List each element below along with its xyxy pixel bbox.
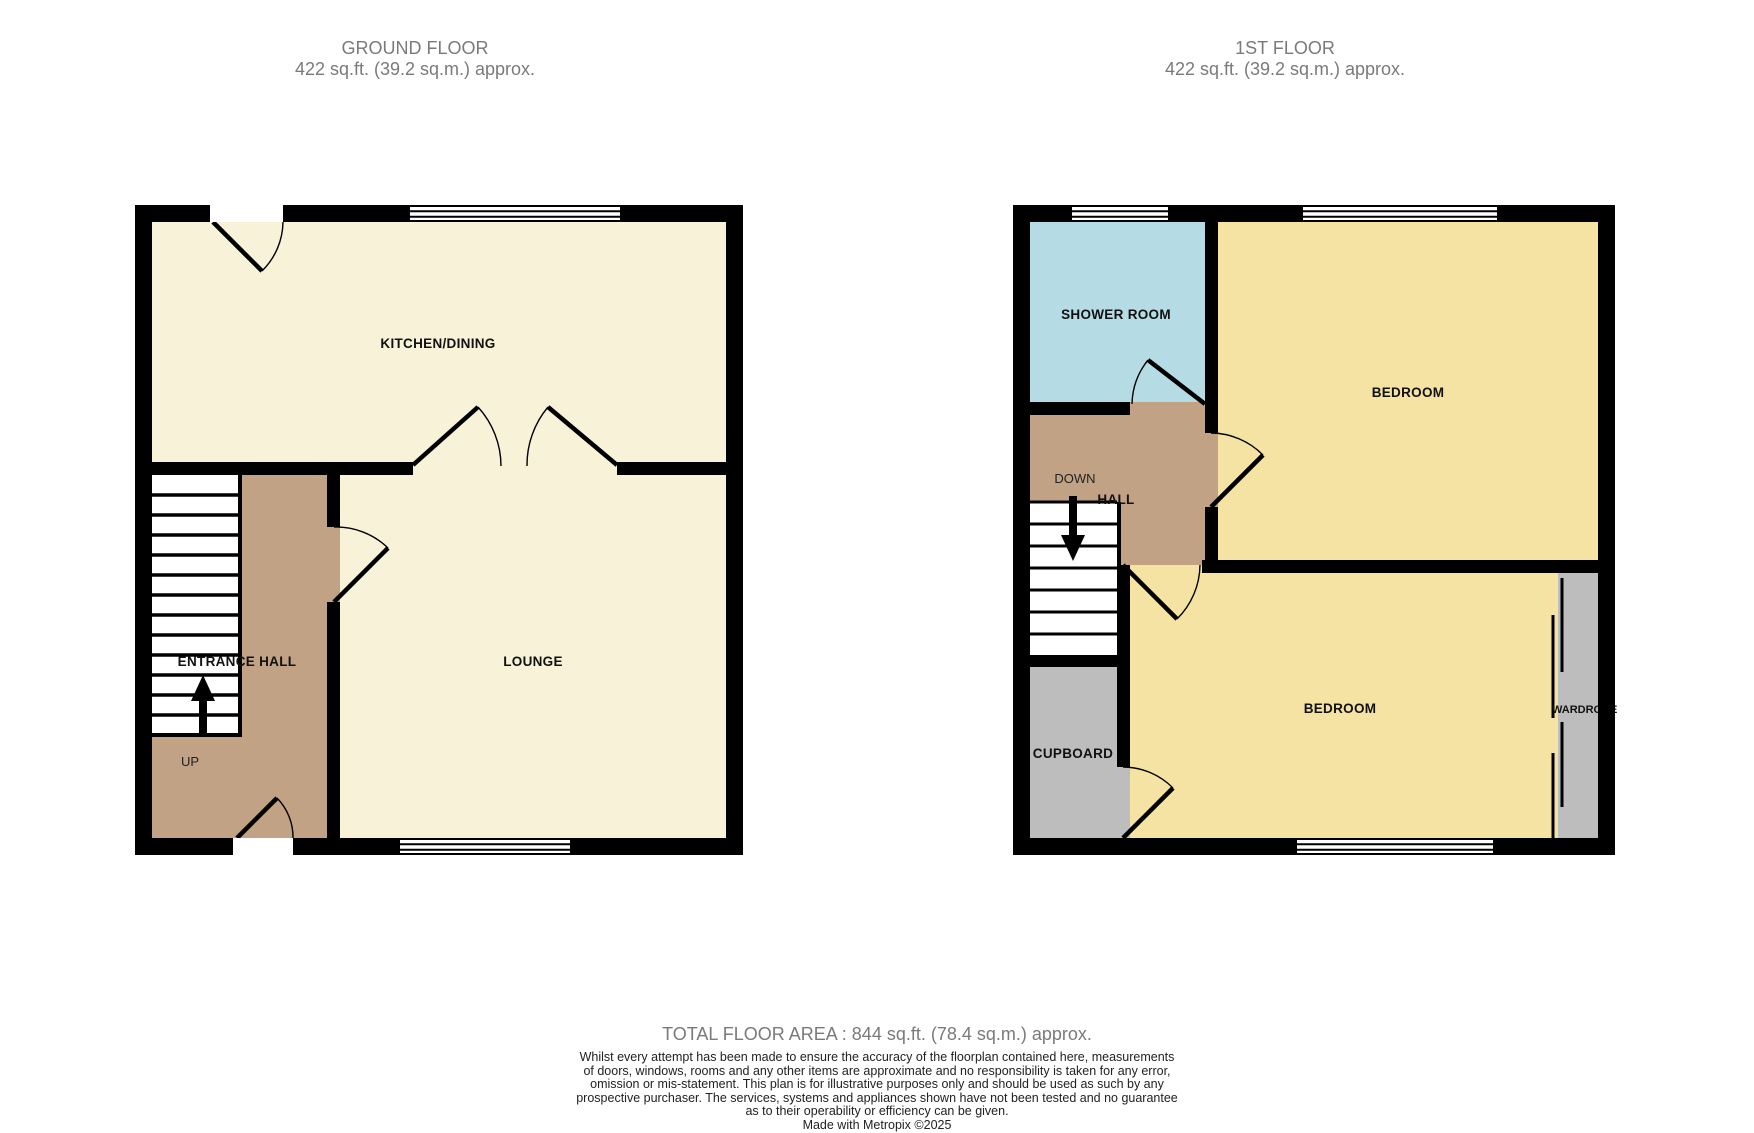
floorplan-canvas: KITCHEN/DINING ENTRANCE HALL LOUNGE UP — [0, 0, 1754, 1133]
metropix-credit: Made with Metropix ©2025 — [0, 1119, 1754, 1133]
entrance-hall-label: ENTRANCE HALL — [178, 654, 297, 669]
bedroom-front-window — [1303, 205, 1497, 222]
shower-room-label: SHOWER ROOM — [1061, 307, 1171, 322]
lounge-window — [400, 838, 570, 855]
bedroom-back-label: BEDROOM — [1304, 701, 1377, 716]
disclaimer: Whilst every attempt has been made to en… — [0, 1051, 1754, 1132]
stairs-up-label: UP — [181, 754, 199, 769]
front-door-opening — [233, 838, 293, 855]
ground-floor-plan: KITCHEN/DINING ENTRANCE HALL LOUNGE UP — [135, 205, 743, 855]
total-floor-area: TOTAL FLOOR AREA : 844 sq.ft. (78.4 sq.m… — [0, 1024, 1754, 1045]
kitchen-window — [410, 205, 620, 222]
cupboard-label: CUPBOARD — [1033, 746, 1113, 761]
disclaimer-line: omission or mis-statement. This plan is … — [0, 1078, 1754, 1092]
first-floor-plan: SHOWER ROOM BEDROOM DOWN HALL CUPBOARD B… — [1013, 205, 1617, 855]
disclaimer-line: Whilst every attempt has been made to en… — [0, 1051, 1754, 1065]
hall-label: HALL — [1097, 492, 1134, 507]
disclaimer-line: as to their operability or efficiency ca… — [0, 1105, 1754, 1119]
stairs-down-label: DOWN — [1054, 471, 1095, 486]
entry-door-opening — [210, 205, 283, 222]
disclaimer-line: of doors, windows, rooms and any other i… — [0, 1065, 1754, 1079]
shower-room-window — [1072, 205, 1168, 222]
bedroom-back-window — [1297, 838, 1493, 855]
kitchen-dining-label: KITCHEN/DINING — [380, 336, 495, 351]
lounge-label: LOUNGE — [503, 654, 563, 669]
disclaimer-line: prospective purchaser. The services, sys… — [0, 1092, 1754, 1106]
bedroom-front-label: BEDROOM — [1372, 385, 1445, 400]
